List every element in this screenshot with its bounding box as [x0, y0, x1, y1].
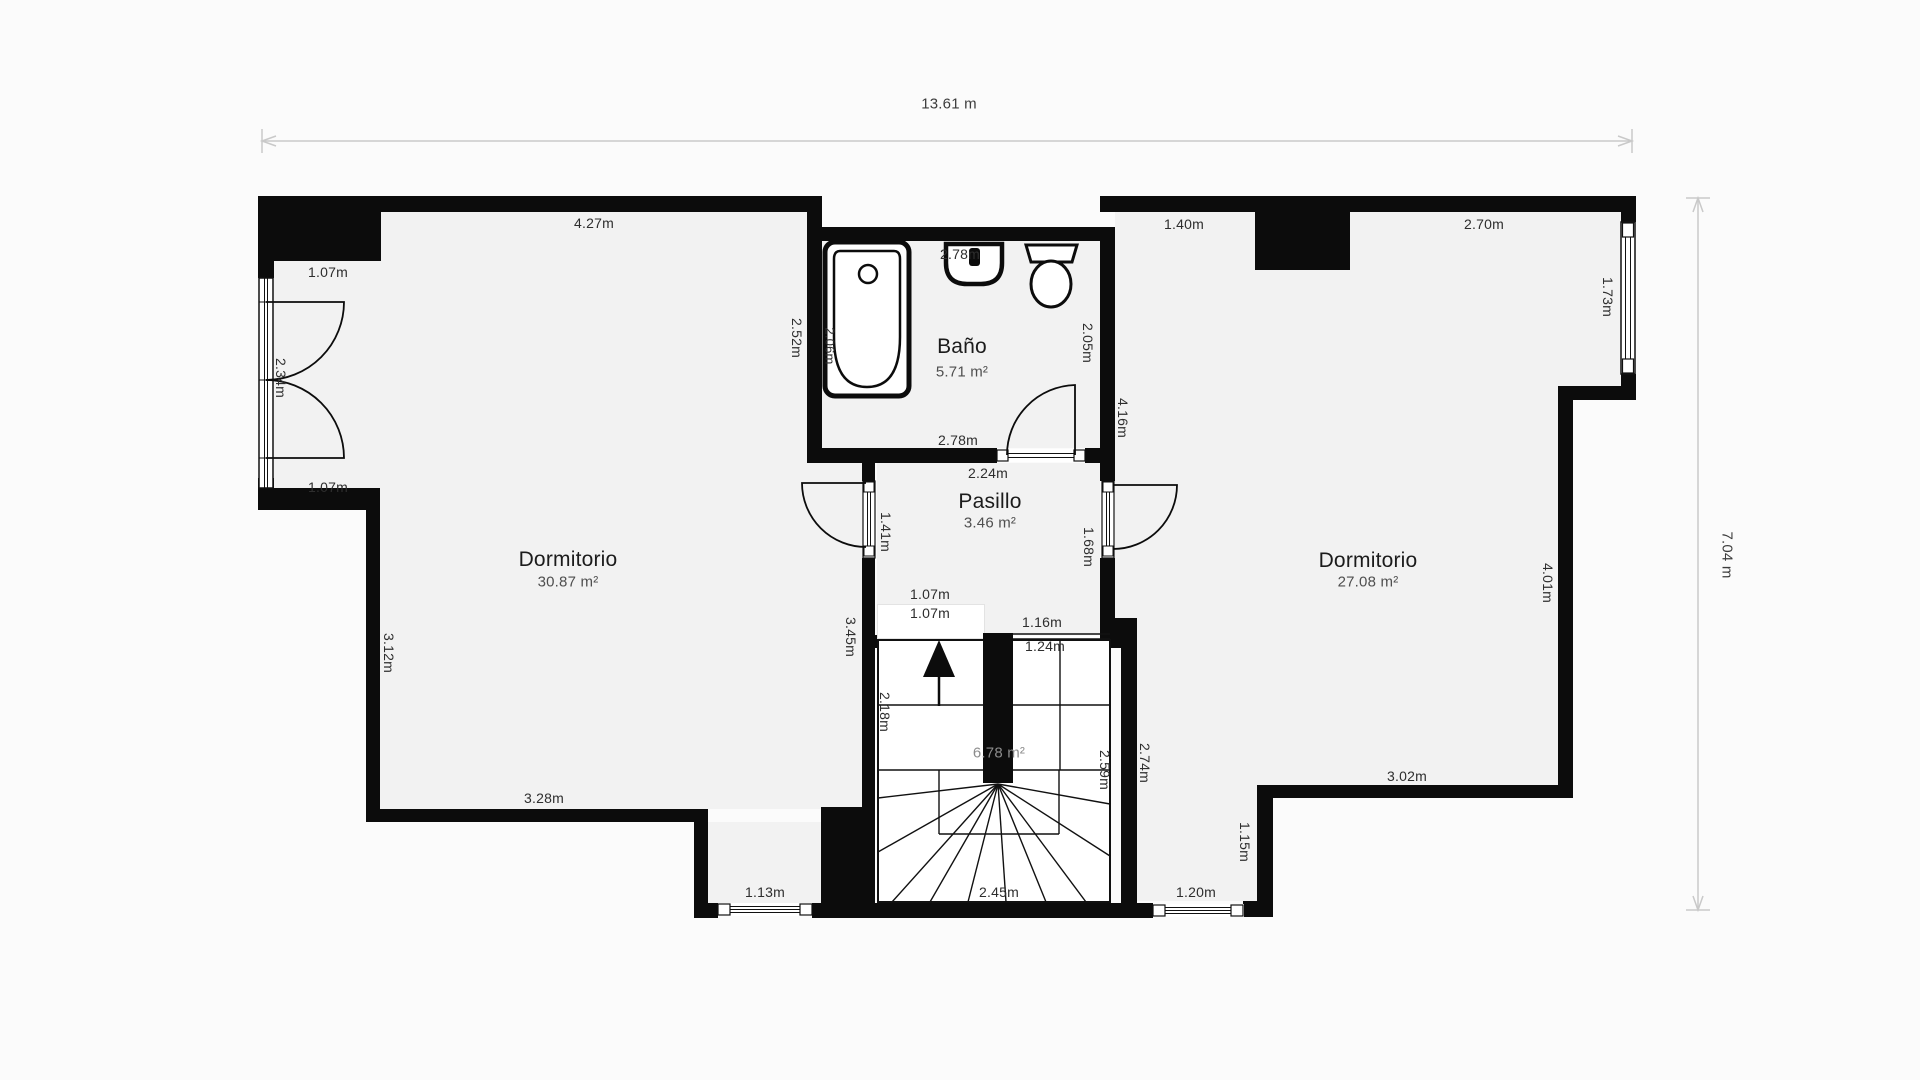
dim-tub-length: 2.06m [823, 327, 838, 364]
wall-bottom-stub-left [694, 903, 718, 918]
wall-left-lower-stub [258, 478, 274, 488]
wall-top-right-section [1100, 196, 1636, 212]
room-area-pasillo: 3.46 m² [964, 515, 1016, 532]
dim-pasillo-west-wall: 3.45m [843, 617, 859, 657]
dim-bottom-door-left: 1.13m [745, 884, 785, 900]
floor-dormitorio-right-mid [1115, 386, 1558, 618]
wall-pasillo-west-lower [862, 558, 875, 635]
dim-bath-top: 2.78m [940, 246, 980, 262]
dim-pasillo-door-left: 1.41m [878, 512, 894, 552]
room-area-bano: 5.71 m² [936, 364, 988, 381]
wall-pillar-top-left [258, 196, 381, 261]
dim-right-top-right: 2.70m [1464, 216, 1504, 232]
dim-bottom-door-right: 1.20m [1176, 884, 1216, 900]
dim-left-window-top: 1.07m [308, 264, 348, 280]
wall-bano-east-lower [1100, 558, 1115, 618]
dim-stair-right-outer: 2.74m [1137, 743, 1153, 783]
dim-bedroom-right-east: 4.01m [1540, 563, 1556, 603]
wall-right-upper-a [1621, 212, 1636, 222]
dim-bottom-step-right: 1.15m [1237, 822, 1253, 862]
bottom-left-door [718, 903, 812, 916]
wall-stair-corner-block [1100, 618, 1137, 648]
wall-stair-left [862, 648, 875, 903]
left-wall-window [259, 278, 273, 488]
dimension-line-top [262, 129, 1632, 153]
dim-stair-top-b: 1.24m [1025, 638, 1065, 654]
dim-bedroom-right-bottom: 3.02m [1387, 768, 1427, 784]
dim-left-door: 2.34m [273, 358, 289, 398]
wall-bano-top [807, 227, 1115, 241]
wall-bedroom-right-bottom [1257, 785, 1573, 798]
dim-bath-right: 2.05m [1080, 323, 1096, 363]
dim-left-bedroom-east: 2.52m [789, 318, 805, 358]
dim-left-bedroom-bottom: 3.28m [524, 790, 564, 806]
room-label-bano: Baño [937, 335, 987, 359]
wall-right-lower [1558, 400, 1573, 785]
wall-stair-right [1121, 648, 1137, 903]
dim-bedroom-right-west: 4.16m [1115, 398, 1131, 438]
wall-left-lower [366, 510, 380, 822]
pasillo-left-door-frame [863, 481, 875, 558]
dim-stair-top-a: 1.16m [1022, 614, 1062, 630]
wall-bedroom-left-bottom [366, 809, 708, 822]
dim-right-window: 1.73m [1600, 277, 1616, 317]
wall-bano-bottom-left [807, 448, 997, 463]
room-label-dormitorio-left: Dormitorio [519, 548, 618, 572]
dim-right-top-left: 1.40m [1164, 216, 1204, 232]
room-area-dormitorio-right: 27.08 m² [1338, 574, 1399, 591]
room-area-dormitorio-left: 30.87 m² [538, 574, 599, 591]
dim-total-height: 7.04 m [1719, 531, 1736, 578]
floor-dormitorio-right-upper [1115, 212, 1621, 386]
floor-dormitorio-left-lower [380, 510, 864, 809]
wall-bedroom-left-east [807, 212, 822, 448]
floor-stairwell [877, 636, 1110, 902]
wall-bottom-center [812, 903, 1153, 918]
wall-right-upper-b [1621, 374, 1636, 386]
floor-plan-canvas: 13.61 m 7.04 m 4.27m 1.07m 2.78m 1.40m 2… [0, 0, 1920, 1080]
dim-left-wall-lower: 3.12m [381, 633, 397, 673]
bano-door-threshold [997, 449, 1085, 462]
dim-total-width: 13.61 m [921, 96, 977, 113]
dim-left-window-bottom: 1.07m [308, 479, 348, 495]
pasillo-right-door-frame [1102, 481, 1114, 558]
dim-stair-entry-b: 1.07m [910, 605, 950, 621]
wall-left-upper-stub [258, 261, 274, 278]
wall-top-left-section [381, 196, 822, 212]
room-label-dormitorio-right: Dormitorio [1319, 549, 1418, 573]
dim-top-left-wall: 4.27m [574, 215, 614, 231]
wall-bano-east-upper [1100, 241, 1115, 481]
room-area-escalera: 6.78 m² [973, 745, 1025, 762]
dimension-line-right [1686, 198, 1710, 910]
dim-stair-bottom: 2.45m [979, 884, 1019, 900]
dim-pasillo-door-right: 1.68m [1081, 527, 1097, 567]
wall-right-notch [1558, 386, 1636, 400]
dim-stair-right-inner: 2.59m [1097, 750, 1113, 790]
dim-pasillo-top: 2.24m [968, 465, 1008, 481]
room-label-pasillo: Pasillo [958, 490, 1021, 514]
dim-stair-left: 2.18m [877, 692, 893, 732]
dim-bath-bottom: 2.78m [938, 432, 978, 448]
wall-chimney-block [1255, 212, 1350, 270]
dim-stair-entry-a: 1.07m [910, 586, 950, 602]
right-wall-window [1621, 222, 1635, 374]
wall-bottom-step-right [1257, 785, 1273, 917]
bottom-right-door [1153, 904, 1244, 917]
wall-bottom-step-left [694, 809, 708, 903]
floor-dormitorio-right-lower [1137, 618, 1558, 785]
